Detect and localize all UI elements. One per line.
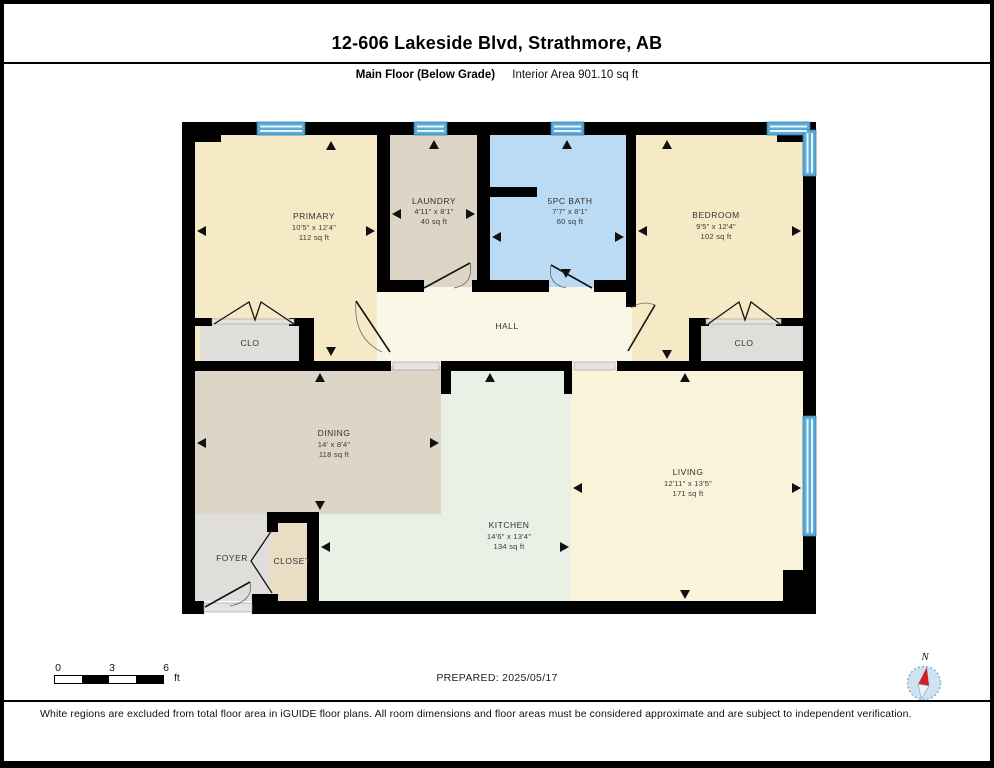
wall-hall-top-a [377,280,424,292]
room-floor-kitchen-lower [312,514,441,601]
wall-mid-c [617,361,816,371]
wall-closet-left [267,512,278,532]
wall-primary-laundry [377,135,390,292]
window [803,416,816,536]
room-dims: 10'5" x 12'4" [292,223,336,232]
room-area: 60 sq ft [557,217,584,226]
footer-divider [4,700,990,702]
room-label-clo-primary: CLO [241,338,260,348]
window [414,122,447,135]
wall-mid-stub-1 [441,361,451,394]
wall-mid-stub-2 [564,361,572,394]
window [551,122,584,135]
room-label-clo-bedroom: CLO [735,338,754,348]
room-area: 171 sq ft [673,489,705,498]
room-label-foyer: FOYER [216,553,248,563]
wall-clo-bedroom-left [689,318,701,361]
room-name: 5PC BATH [548,196,593,206]
wall-outer-bottom [252,601,816,614]
room-area: 112 sq ft [299,233,330,242]
wall-outer-bottom-left [182,601,204,614]
wall-mid-a [182,361,391,371]
room-dims: 4'11" x 8'1" [414,207,453,216]
room-label-hall: HALL [495,321,518,331]
room-area: 102 sq ft [701,232,733,241]
room-name: LIVING [673,467,704,477]
wall-corner-top-right [777,135,803,142]
room-dims: 14' x 8'4" [318,440,351,449]
room-area: 134 sq ft [494,542,526,551]
wall-hall-top-b [472,280,549,292]
window [803,130,816,176]
closet-track-bedroom [706,319,781,324]
prepared-date: PREPARED: 2025/05/17 [4,672,990,684]
opening-hall-dining [393,362,439,370]
compass-north-label: N [920,651,929,663]
floor-plan-page: 12-606 Lakeside Blvd, Strathmore, AB Mai… [0,0,994,768]
room-label-dining: DINING 14' x 8'4" 118 sq ft [318,428,351,459]
closet-track-primary [212,319,294,324]
wall-corner-bottom-right [783,570,803,601]
disclaimer-text: White regions are excluded from total fl… [40,708,980,720]
room-name: KITCHEN [489,520,530,530]
window [257,122,305,135]
room-dims: 14'6" x 13'4" [487,532,531,541]
wall-bath-stub [487,187,537,197]
wall-closet-bottom-stub [252,594,278,601]
room-dims: 7'7" x 8'1" [552,207,588,216]
room-dims: 12'11" x 13'5" [664,479,712,488]
room-name: LAUNDRY [412,196,456,206]
wall-corner-top-left [195,135,221,142]
room-label-closet: CLOSET [273,556,310,566]
wall-laundry-bath [477,135,490,287]
wall-hall-top-c [594,280,636,292]
wall-clo-primary-left [195,318,212,326]
room-name: BEDROOM [692,210,739,220]
room-dims: 9'5" x 12'4" [696,222,736,231]
room-area: 40 sq ft [421,217,448,226]
room-name: PRIMARY [293,211,335,221]
room-floor-kitchen [441,366,571,601]
room-area: 118 sq ft [319,450,350,459]
room-floor-dining [189,366,441,514]
wall-mid-b [451,361,564,371]
opening-hall-living [574,362,615,370]
wall-clo-primary-right [299,318,314,361]
room-name: DINING [318,428,351,438]
floor-plan-drawing: PRIMARY 10'5" x 12'4" 112 sq ft LAUNDRY … [4,4,994,768]
